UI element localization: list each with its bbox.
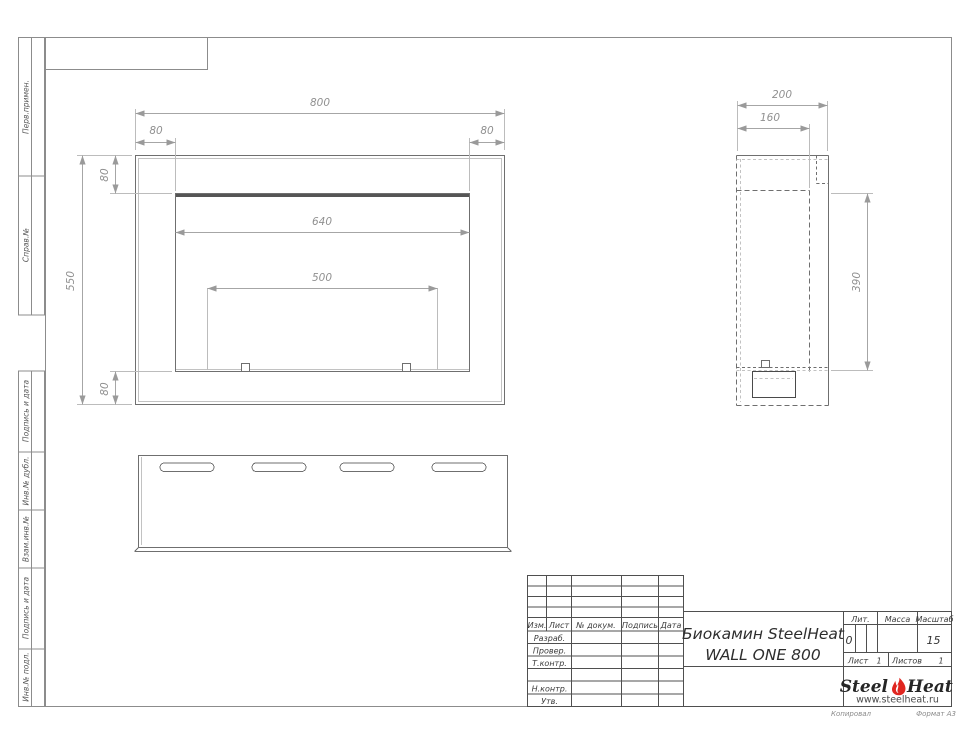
side-burner-clip [762, 361, 770, 368]
title-block: Изм. Лист № докум. Подпись Дата Разраб. … [528, 576, 954, 707]
tb-lit-label: Лит. [850, 615, 869, 624]
front-dimensions: 800 80 80 80 550 80 640 500 [65, 97, 505, 405]
margin-label: Взам.инв.№ [22, 516, 31, 562]
doc-title-line2: WALL ONE 800 [705, 646, 821, 664]
footer-copied-label: Копировал [831, 710, 872, 718]
tb-col-docnum: № докум. [575, 621, 615, 630]
tb-sheet-number: 1 [876, 657, 881, 666]
tb-sheets-total: 1 [938, 657, 943, 666]
vent-slot [160, 463, 214, 472]
vent-slot [432, 463, 486, 472]
dim-side-inner-depth: 160 [760, 112, 780, 124]
side-burner-block [753, 372, 796, 398]
margin-label: Инв.№ подл. [22, 652, 31, 701]
margin-label: Перв.примен. [22, 80, 31, 134]
tb-row-ncontrol: Н.контр. [532, 685, 568, 694]
margin-column: Перв.примен. Справ.№ Подпись и дата Инв.… [19, 38, 45, 707]
dim-side-depth: 200 [772, 89, 792, 101]
margin-label: Справ.№ [22, 228, 31, 262]
burner-clip [403, 364, 411, 372]
flame-icon [892, 678, 906, 696]
dim-front-flange-top: 80 [99, 168, 111, 182]
tb-row-developed: Разраб. [534, 634, 565, 643]
logo-url: www.steelheat.ru [856, 695, 939, 706]
tb-lit-value: 0 [846, 634, 853, 647]
tb-col-date: Дата [660, 621, 682, 630]
tb-sheet-label: Лист [847, 657, 869, 666]
top-left-designation-box [46, 38, 208, 70]
dim-front-total-width: 800 [310, 97, 330, 109]
tb-scale-value: 15 [927, 634, 941, 647]
dim-front-flange-left: 80 [149, 125, 163, 137]
vent-slot [252, 463, 306, 472]
burner-clip [242, 364, 250, 372]
tb-scale-label: Масштаб [915, 615, 953, 624]
doc-title-line1: Биокамин SteelHeat [682, 625, 845, 643]
tb-sheets-label: Листов [891, 657, 922, 666]
margin-label: Подпись и дата [22, 380, 31, 443]
dim-front-total-height: 550 [65, 271, 77, 291]
tb-row-tcontrol: Т.контр. [532, 659, 567, 668]
side-dimensions: 200 160 390 [738, 89, 874, 371]
tb-mass-label: Масса [885, 615, 911, 624]
margin-label: Подпись и дата [22, 577, 31, 640]
drawing-sheet: Перв.примен. Справ.№ Подпись и дата Инв.… [0, 0, 970, 749]
dim-front-flange-right: 80 [480, 125, 494, 137]
footer-format-label: Формат А3 [916, 710, 956, 718]
drawing-canvas: Перв.примен. Справ.№ Подпись и дата Инв.… [0, 0, 970, 749]
dim-front-burner-width: 500 [312, 272, 332, 284]
bottom-view [135, 456, 512, 552]
dim-front-flange-bottom: 80 [99, 382, 111, 396]
frame-footer: Копировал Формат А3 [831, 710, 956, 718]
tb-row-checked: Провер. [533, 647, 566, 656]
tb-col-izm: Изм. [528, 621, 547, 630]
vent-slot [340, 463, 394, 472]
dim-side-opening-height: 390 [851, 272, 863, 292]
dim-front-opening-width: 640 [312, 216, 332, 228]
tb-col-list: Лист [548, 621, 570, 630]
side-view [737, 156, 829, 406]
tb-col-signature: Подпись [622, 621, 658, 630]
tb-row-approved: Утв. [541, 697, 558, 706]
steelheat-logo: Steel Heat www.steelheat.ru [840, 677, 953, 706]
margin-label: Инв.№ дубл. [22, 457, 31, 506]
